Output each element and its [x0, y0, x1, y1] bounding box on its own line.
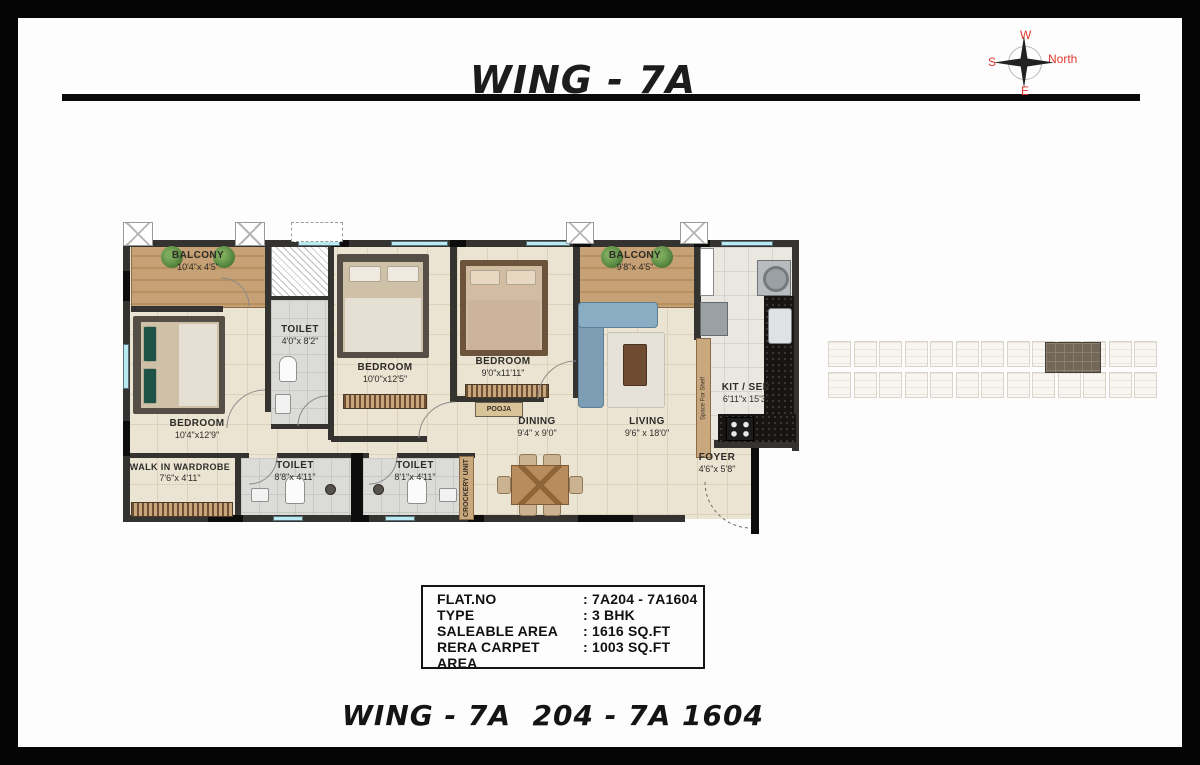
- room-name: BEDROOM: [169, 418, 224, 429]
- key-plan-unit: [879, 372, 902, 398]
- bed: [337, 254, 429, 358]
- info-label: FLAT.NO: [437, 591, 583, 607]
- washbasin-icon: [439, 488, 457, 502]
- key-plan-unit: [981, 372, 1004, 398]
- key-plan-unit: [1083, 372, 1106, 398]
- wall: [235, 453, 241, 522]
- room-name: FOYER: [699, 452, 735, 463]
- room-name: LIVING: [629, 416, 665, 427]
- compass-label-left: S: [988, 55, 996, 69]
- info-row: TYPE : 3 BHK: [437, 607, 689, 623]
- room-dims: 4'0"x 8'2": [282, 336, 319, 346]
- info-row: RERA CARPET AREA : 1003 SQ.FT: [437, 639, 689, 671]
- wall: [123, 421, 130, 456]
- room-label-walk-in-wardrobe: WALK IN WARDROBE 7'6"x 4'11": [125, 462, 235, 483]
- duct-area: [271, 242, 330, 300]
- info-value: : 3 BHK: [583, 607, 635, 623]
- info-label: RERA CARPET AREA: [437, 639, 583, 671]
- room-name: TOILET: [396, 460, 434, 471]
- key-plan-unit: [854, 341, 877, 367]
- projection-outline: [291, 222, 343, 242]
- room-name: DINING: [518, 416, 555, 427]
- washbasin-icon: [251, 488, 269, 502]
- key-plan-unit: [828, 372, 851, 398]
- info-value: : 1003 SQ.FT: [583, 639, 670, 671]
- key-plan-unit: [854, 372, 877, 398]
- window: [526, 241, 570, 246]
- compass-label-bottom: E: [1021, 84, 1029, 98]
- info-row: FLAT.NO : 7A204 - 7A1604: [437, 591, 689, 607]
- key-plan-units: [828, 341, 1160, 403]
- stove-icon: [726, 417, 754, 441]
- room-name: BEDROOM: [475, 356, 530, 367]
- key-plan-unit: [981, 341, 1004, 367]
- bed: [133, 316, 225, 414]
- planter-box-icon: [123, 222, 153, 246]
- room-label-bedroom-1: BEDROOM 10'4"x12'9": [145, 418, 249, 440]
- flat-info-table: FLAT.NO : 7A204 - 7A1604 TYPE : 3 BHK SA…: [421, 585, 705, 669]
- key-plan-unit: [905, 341, 928, 367]
- shower-icon: [325, 484, 336, 495]
- room-dims: 10'0"x12'5": [363, 374, 407, 384]
- key-plan-unit: [828, 341, 851, 367]
- room-dims: 10'4"x12'9": [175, 430, 219, 440]
- pooja-unit: POOJA: [475, 402, 523, 417]
- compass-star-icon: [1020, 36, 1028, 88]
- room-name: BALCONY: [609, 250, 661, 261]
- wall: [331, 436, 427, 442]
- compass-rose: W S North E: [970, 22, 1080, 102]
- room-label-bedroom-3: BEDROOM 9'0"x11'11": [457, 356, 549, 378]
- key-plan-unit: [930, 372, 953, 398]
- room-label-dining: DINING 9'4" x 9'0": [491, 416, 583, 438]
- key-plan: [828, 341, 1160, 403]
- window: [385, 516, 415, 521]
- key-plan-unit: [1109, 341, 1132, 367]
- key-plan-unit: [879, 341, 902, 367]
- room-name: TOILET: [276, 460, 314, 471]
- room-dims: 4'6"x 5'8": [699, 464, 736, 474]
- key-plan-unit: [1007, 341, 1030, 367]
- room-label-toilet-2: TOILET 8'8"x 4'11": [243, 460, 347, 482]
- sliding-panel: [700, 248, 714, 296]
- coffee-table: [623, 344, 647, 386]
- room-label-living: LIVING 9'6" x 18'0": [599, 416, 695, 438]
- room-dims: 8'1"x 4'11": [394, 472, 435, 482]
- info-label: SALEABLE AREA: [437, 623, 583, 639]
- info-row: SALEABLE AREA : 1616 SQ.FT: [437, 623, 689, 639]
- window: [391, 241, 448, 246]
- room-label-toilet-1: TOILET 4'0"x 8'2": [269, 324, 331, 346]
- window: [721, 241, 773, 246]
- window: [123, 344, 129, 389]
- shower-icon: [373, 484, 384, 495]
- wall: [271, 424, 331, 429]
- key-plan-highlighted-unit: [1045, 342, 1101, 373]
- key-plan-unit: [1134, 341, 1157, 367]
- planter-box-icon: [680, 222, 708, 244]
- key-plan-unit: [956, 372, 979, 398]
- room-label-toilet-3: TOILET 8'1"x 4'11": [363, 460, 467, 482]
- room-dims: 9'8"x 4'5": [617, 262, 654, 272]
- mask: [759, 448, 803, 548]
- room-dims: 6'11"x 15'3": [723, 394, 769, 404]
- room-label-balcony-2: BALCONY 9'8"x 4'5": [578, 250, 692, 272]
- room-name: TOILET: [281, 324, 319, 335]
- room-dims: 9'4" x 9'0": [517, 428, 556, 438]
- key-plan-unit: [1134, 372, 1157, 398]
- room-dims: 9'6" x 18'0": [625, 428, 669, 438]
- fridge-icon: [700, 302, 728, 336]
- wall: [271, 296, 331, 300]
- room-dims: 10'4"x 4'5": [177, 262, 219, 272]
- key-plan-unit: [956, 341, 979, 367]
- room-dims: 7'6"x 4'11": [159, 473, 200, 483]
- dining-table: [511, 465, 569, 505]
- wall: [123, 453, 235, 458]
- wardrobe: [465, 384, 549, 398]
- sofa: [578, 302, 658, 328]
- planter-box-icon: [566, 222, 594, 244]
- dining-set: [491, 454, 583, 516]
- floorplan-page: WING - 7A W S North E: [0, 0, 1200, 765]
- planter-box-icon: [235, 222, 265, 246]
- room-dims: 9'0"x11'11": [481, 368, 524, 378]
- window: [273, 516, 303, 521]
- room-label-kitchen: KIT / SER 6'11"x 15'3": [702, 382, 790, 404]
- key-plan-unit: [1032, 372, 1055, 398]
- compass-label-right: North: [1048, 52, 1077, 66]
- bed: [460, 260, 548, 356]
- room-name: BALCONY: [172, 250, 224, 261]
- wall: [450, 240, 457, 402]
- wall: [450, 240, 466, 247]
- room-name: WALK IN WARDROBE: [130, 462, 230, 472]
- wall: [353, 515, 369, 522]
- wardrobe: [343, 394, 427, 409]
- wardrobe: [131, 502, 233, 517]
- info-label: TYPE: [437, 607, 583, 623]
- wall: [131, 306, 223, 312]
- washbasin-icon: [275, 394, 291, 414]
- key-plan-unit: [1058, 372, 1081, 398]
- room-label-foyer: FOYER 4'6"x 5'8": [679, 452, 755, 474]
- key-plan-unit: [1109, 372, 1132, 398]
- info-value: : 7A204 - 7A1604: [583, 591, 698, 607]
- room-dims: 8'8"x 4'11": [274, 472, 315, 482]
- info-value: : 1616 SQ.FT: [583, 623, 670, 639]
- key-plan-unit: [930, 341, 953, 367]
- toilet-wc-icon: [279, 356, 297, 382]
- footer-title: WING - 7A 204 - 7A 1604: [18, 699, 1088, 732]
- room-label-bedroom-2: BEDROOM 10'0"x12'5": [337, 362, 433, 384]
- key-plan-unit: [1007, 372, 1030, 398]
- washing-machine-icon: [757, 260, 791, 296]
- wall: [578, 515, 633, 522]
- room-name: KIT / SER: [722, 382, 771, 393]
- floor-plan: Space For Shelf CROCKERY UNIT POOJA BALC…: [123, 216, 803, 541]
- room-name: BEDROOM: [357, 362, 412, 373]
- wall: [351, 453, 363, 522]
- wall: [123, 271, 130, 301]
- sink-icon: [768, 308, 792, 344]
- key-plan-unit: [905, 372, 928, 398]
- room-label-balcony-1: BALCONY 10'4"x 4'5": [141, 250, 255, 272]
- compass-label-top: W: [1020, 28, 1031, 42]
